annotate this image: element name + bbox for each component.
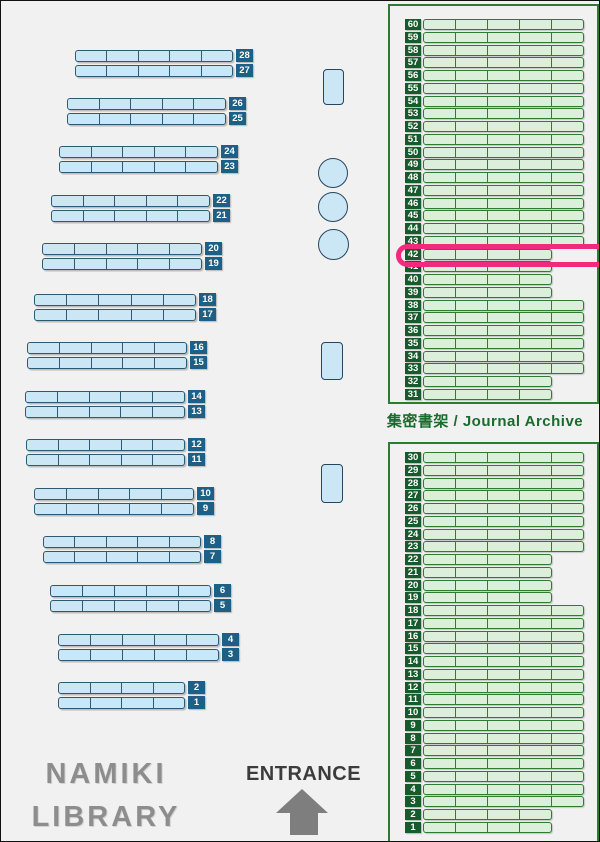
archive-shelf bbox=[423, 147, 584, 158]
shelf-segment bbox=[107, 51, 138, 61]
archive-shelf-number: 31 bbox=[405, 389, 421, 400]
shelf-segment bbox=[424, 58, 456, 67]
shelf-segment bbox=[552, 352, 583, 361]
shelf-segment bbox=[424, 211, 456, 220]
shelf-segment bbox=[520, 148, 552, 157]
pillar bbox=[321, 464, 343, 503]
archive-shelf-number: 52 bbox=[405, 121, 421, 132]
shelf-segment bbox=[488, 644, 520, 653]
shelf-segment bbox=[456, 186, 488, 195]
archive-shelf-pair: 1211 bbox=[405, 682, 597, 706]
shelf-segment bbox=[520, 670, 552, 679]
shelf-segment bbox=[488, 288, 520, 297]
archive-shelf-pair: 109 bbox=[405, 707, 597, 731]
archive-shelf bbox=[423, 287, 552, 298]
shelf-segment bbox=[520, 339, 552, 348]
floor-shelf-row: 9 bbox=[34, 502, 214, 515]
shelf-segment bbox=[424, 84, 456, 93]
shelf-segment bbox=[138, 259, 170, 269]
shelf-segment bbox=[520, 708, 552, 717]
shelf-segment bbox=[115, 196, 147, 206]
floor-shelf-row: 13 bbox=[25, 405, 205, 418]
shelf-segment bbox=[424, 352, 456, 361]
shelf-segment bbox=[488, 581, 520, 590]
shelf-segment bbox=[456, 339, 488, 348]
shelf-segment bbox=[520, 313, 552, 322]
archive-shelf bbox=[423, 57, 584, 68]
shelf-segment bbox=[552, 453, 583, 462]
floor-shelf-number: 5 bbox=[214, 599, 231, 612]
shelf-segment bbox=[424, 237, 456, 246]
shelf-segment bbox=[520, 224, 552, 233]
archive-shelf-pair: 3635 bbox=[405, 325, 597, 349]
shelf-segment bbox=[552, 695, 583, 704]
shelf-segment bbox=[552, 301, 583, 310]
shelf-segment bbox=[147, 196, 179, 206]
shelf-segment bbox=[520, 364, 552, 373]
archive-shelf bbox=[423, 541, 584, 552]
shelf-segment bbox=[552, 797, 583, 806]
archive-shelf-number: 7 bbox=[405, 745, 421, 756]
shelf-segment bbox=[43, 244, 75, 254]
shelf-segment bbox=[520, 237, 552, 246]
shelf-segment bbox=[488, 339, 520, 348]
shelf-segment bbox=[552, 20, 583, 29]
archive-shelf-row: 1 bbox=[405, 822, 597, 833]
shelf-segment bbox=[123, 343, 155, 353]
shelf-segment bbox=[26, 392, 58, 402]
archive-shelf bbox=[423, 376, 552, 387]
shelf-segment bbox=[488, 135, 520, 144]
archive-shelf-number: 50 bbox=[405, 147, 421, 158]
floor-shelf bbox=[34, 309, 196, 321]
shelf-segment bbox=[123, 650, 155, 660]
archive-shelf-row: 29 bbox=[405, 465, 597, 476]
archive-shelf-pair: 3837 bbox=[405, 300, 597, 324]
shelf-segment bbox=[424, 721, 456, 730]
shelf-segment bbox=[153, 440, 184, 450]
shelf-segment bbox=[456, 71, 488, 80]
shelf-segment bbox=[488, 262, 520, 271]
shelf-segment bbox=[100, 114, 132, 124]
floor-shelf-number: 2 bbox=[188, 681, 205, 694]
shelf-segment bbox=[194, 99, 225, 109]
archive-shelf-number: 54 bbox=[405, 96, 421, 107]
archive-shelf-row: 6 bbox=[405, 758, 597, 769]
archive-shelf-row: 5 bbox=[405, 771, 597, 782]
shelf-segment bbox=[60, 162, 92, 172]
archive-shelf-number: 27 bbox=[405, 490, 421, 501]
archive-shelf-row: 48 bbox=[405, 172, 597, 183]
shelf-segment bbox=[132, 295, 164, 305]
shelf-segment bbox=[456, 135, 488, 144]
shelf-segment bbox=[107, 552, 138, 562]
archive-shelf-row: 56 bbox=[405, 70, 597, 81]
shelf-segment bbox=[154, 698, 185, 708]
archive-shelf-number: 26 bbox=[405, 503, 421, 514]
floor-shelf-pair: 2625 bbox=[67, 97, 246, 125]
shelf-segment bbox=[424, 734, 456, 743]
archive-shelf-pair: 21 bbox=[405, 809, 597, 833]
archive-shelf-number: 17 bbox=[405, 618, 421, 629]
shelf-segment bbox=[99, 504, 131, 514]
shelf-segment bbox=[456, 313, 488, 322]
archive-shelf bbox=[423, 631, 584, 642]
archive-shelf-pair: 3231 bbox=[405, 376, 597, 400]
shelf-segment bbox=[155, 358, 186, 368]
archive-shelf bbox=[423, 643, 584, 654]
archive-shelf-pair: 1615 bbox=[405, 631, 597, 655]
shelf-segment bbox=[424, 275, 456, 284]
archive-shelf-row: 26 bbox=[405, 503, 597, 514]
library-name: NAMIKI LIBRARY bbox=[11, 753, 201, 839]
floor-shelf bbox=[43, 536, 201, 548]
archive-shelf bbox=[423, 618, 584, 629]
shelf-segment bbox=[488, 148, 520, 157]
shelf-segment bbox=[424, 453, 456, 462]
archive-shelf-row: 3 bbox=[405, 796, 597, 807]
shelf-segment bbox=[552, 313, 583, 322]
shelf-segment bbox=[138, 244, 170, 254]
shelf-segment bbox=[552, 173, 583, 182]
shelf-segment bbox=[488, 670, 520, 679]
shelf-segment bbox=[424, 746, 456, 755]
archive-shelf bbox=[423, 605, 584, 616]
shelf-segment bbox=[456, 823, 488, 832]
floor-shelf-number: 14 bbox=[188, 390, 205, 403]
shelf-segment bbox=[456, 122, 488, 131]
floor-shelf bbox=[43, 551, 201, 563]
entrance-label: ENTRANCE bbox=[236, 763, 371, 786]
shelf-segment bbox=[488, 364, 520, 373]
shelf-segment bbox=[138, 537, 169, 547]
shelf-segment bbox=[456, 644, 488, 653]
shelf-segment bbox=[121, 392, 153, 402]
archive-shelf bbox=[423, 682, 584, 693]
shelf-segment bbox=[456, 491, 488, 500]
floor-shelf-row: 23 bbox=[59, 160, 238, 173]
shelf-segment bbox=[35, 295, 67, 305]
floor-shelf-number: 15 bbox=[190, 356, 207, 369]
shelf-segment bbox=[456, 20, 488, 29]
floor-shelf bbox=[58, 682, 185, 694]
shelf-segment bbox=[75, 244, 107, 254]
shelf-segment bbox=[456, 772, 488, 781]
shelf-segment bbox=[488, 84, 520, 93]
shelf-segment bbox=[424, 593, 456, 602]
floor-shelf-row: 2 bbox=[58, 681, 205, 694]
shelf-segment bbox=[139, 66, 170, 76]
floor-shelf-pair: 65 bbox=[50, 584, 231, 612]
archive-shelf-row: 31 bbox=[405, 389, 597, 400]
shelf-segment bbox=[179, 601, 210, 611]
shelf-segment bbox=[520, 785, 552, 794]
shelf-segment bbox=[552, 148, 583, 157]
shelf-segment bbox=[456, 568, 488, 577]
shelf-segment bbox=[424, 772, 456, 781]
shelf-segment bbox=[488, 313, 520, 322]
shelf-segment bbox=[552, 734, 583, 743]
shelf-segment bbox=[424, 33, 456, 42]
shelf-segment bbox=[552, 237, 583, 246]
shelf-segment bbox=[488, 466, 520, 475]
archive-shelf-pair: 3029 bbox=[405, 452, 597, 476]
archive-shelf-row: 16 bbox=[405, 631, 597, 642]
archive-shelf-number: 30 bbox=[405, 452, 421, 463]
shelf-segment bbox=[488, 109, 520, 118]
archive-shelf-row: 38 bbox=[405, 300, 597, 311]
shelf-segment bbox=[520, 58, 552, 67]
archive-shelf bbox=[423, 300, 584, 311]
archive-shelf-row: 50 bbox=[405, 147, 597, 158]
shelf-segment bbox=[83, 601, 115, 611]
floor-shelf-number: 28 bbox=[236, 49, 253, 62]
shelf-segment bbox=[424, 530, 456, 539]
shelf-segment bbox=[84, 211, 116, 221]
shelf-segment bbox=[456, 542, 488, 551]
archive-shelf-pair: 4847 bbox=[405, 172, 597, 196]
shelf-segment bbox=[552, 326, 583, 335]
archive-shelf-pair: 2423 bbox=[405, 529, 597, 553]
shelf-segment bbox=[520, 542, 552, 551]
archive-shelf-number: 57 bbox=[405, 57, 421, 68]
shelf-segment bbox=[488, 593, 520, 602]
archive-shelf bbox=[423, 822, 552, 833]
round-column bbox=[318, 158, 348, 188]
library-name-line1: NAMIKI bbox=[11, 753, 201, 796]
shelf-segment bbox=[456, 683, 488, 692]
shelf-segment bbox=[488, 491, 520, 500]
shelf-segment bbox=[520, 453, 552, 462]
archive-shelf bbox=[423, 809, 552, 820]
archive-shelf-row: 45 bbox=[405, 210, 597, 221]
shelf-segment bbox=[67, 295, 99, 305]
shelf-segment bbox=[456, 288, 488, 297]
shelf-segment bbox=[424, 250, 456, 259]
shelf-segment bbox=[488, 721, 520, 730]
floor-shelf-number: 8 bbox=[204, 535, 221, 548]
archive-shelf bbox=[423, 19, 584, 30]
shelf-segment bbox=[488, 785, 520, 794]
archive-shelf-row: 7 bbox=[405, 745, 597, 756]
archive-shelf-number: 3 bbox=[405, 796, 421, 807]
floor-shelf-number: 20 bbox=[205, 242, 222, 255]
shelf-segment bbox=[424, 479, 456, 488]
shelf-segment bbox=[424, 301, 456, 310]
pillar bbox=[323, 69, 344, 105]
floor-shelf bbox=[25, 406, 185, 418]
archive-shelf-number: 16 bbox=[405, 631, 421, 642]
floor-shelf-number: 25 bbox=[229, 112, 246, 125]
shelf-segment bbox=[424, 542, 456, 551]
floor-shelf bbox=[27, 357, 187, 369]
floor-shelf-number: 21 bbox=[213, 209, 230, 222]
shelf-segment bbox=[488, 517, 520, 526]
shelf-segment bbox=[163, 99, 195, 109]
floor-shelf-row: 15 bbox=[27, 356, 207, 369]
archive-shelf-pair: 5049 bbox=[405, 147, 597, 171]
shelf-segment bbox=[552, 199, 583, 208]
archive-shelf bbox=[423, 503, 584, 514]
archive-shelf-number: 15 bbox=[405, 643, 421, 654]
shelf-segment bbox=[456, 632, 488, 641]
shelf-segment bbox=[456, 619, 488, 628]
shelf-segment bbox=[520, 797, 552, 806]
shelf-segment bbox=[123, 147, 155, 157]
shelf-segment bbox=[552, 542, 583, 551]
shelf-segment bbox=[424, 390, 456, 399]
shelf-segment bbox=[552, 109, 583, 118]
shelf-segment bbox=[552, 97, 583, 106]
shelf-segment bbox=[552, 759, 583, 768]
shelf-segment bbox=[456, 734, 488, 743]
shelf-segment bbox=[424, 759, 456, 768]
floor-shelf bbox=[42, 258, 202, 270]
archive-shelf bbox=[423, 338, 584, 349]
shelf-segment bbox=[155, 635, 187, 645]
floor-shelf-pair: 43 bbox=[58, 633, 239, 661]
archive-shelf bbox=[423, 198, 584, 209]
shelf-segment bbox=[424, 708, 456, 717]
shelf-segment bbox=[153, 407, 184, 417]
floor-shelf-number: 17 bbox=[199, 308, 216, 321]
shelf-segment bbox=[424, 186, 456, 195]
archive-shelf-row: 14 bbox=[405, 656, 597, 667]
shelf-segment bbox=[115, 601, 147, 611]
archive-shelf-number: 58 bbox=[405, 45, 421, 56]
archive-shelf-row: 25 bbox=[405, 516, 597, 527]
shelf-segment bbox=[92, 358, 124, 368]
shelf-segment bbox=[92, 162, 124, 172]
floor-shelf-row: 21 bbox=[51, 209, 230, 222]
archive-shelf-number: 25 bbox=[405, 516, 421, 527]
floor-shelf-number: 7 bbox=[204, 550, 221, 563]
shelf-segment bbox=[552, 657, 583, 666]
archive-shelf-row: 51 bbox=[405, 134, 597, 145]
shelf-segment bbox=[552, 339, 583, 348]
entrance-arrow-icon bbox=[276, 789, 328, 813]
archive-shelf-number: 40 bbox=[405, 274, 421, 285]
shelf-segment bbox=[122, 440, 154, 450]
shelf-segment bbox=[456, 390, 488, 399]
archive-shelf-number: 48 bbox=[405, 172, 421, 183]
shelf-segment bbox=[488, 555, 520, 564]
shelf-segment bbox=[92, 343, 124, 353]
floor-shelf-pair: 109 bbox=[34, 487, 214, 515]
shelf-segment bbox=[76, 51, 107, 61]
archive-shelf-row: 55 bbox=[405, 83, 597, 94]
floor-shelf bbox=[58, 697, 185, 709]
shelf-segment bbox=[552, 135, 583, 144]
archive-shelf bbox=[423, 134, 584, 145]
shelf-segment bbox=[456, 479, 488, 488]
shelf-segment bbox=[552, 619, 583, 628]
archive-shelf-pair: 6059 bbox=[405, 19, 597, 43]
floor-shelf bbox=[26, 439, 185, 451]
shelf-segment bbox=[115, 211, 147, 221]
floor-shelf bbox=[59, 146, 218, 158]
archive-shelf bbox=[423, 325, 584, 336]
shelf-segment bbox=[186, 162, 217, 172]
shelf-segment bbox=[424, 288, 456, 297]
floor-shelf-pair: 2019 bbox=[42, 242, 222, 270]
floor-shelf-row: 25 bbox=[67, 112, 246, 125]
shelf-segment bbox=[488, 453, 520, 462]
shelf-segment bbox=[456, 517, 488, 526]
floor-shelf bbox=[50, 585, 211, 597]
shelf-segment bbox=[520, 33, 552, 42]
shelf-segment bbox=[520, 199, 552, 208]
shelf-segment bbox=[424, 97, 456, 106]
shelf-segment bbox=[424, 20, 456, 29]
archive-shelf-row: 33 bbox=[405, 363, 597, 374]
shelf-segment bbox=[488, 71, 520, 80]
shelf-segment bbox=[99, 295, 131, 305]
archive-shelf bbox=[423, 223, 584, 234]
shelf-segment bbox=[520, 160, 552, 169]
floor-shelf-row: 24 bbox=[59, 145, 238, 158]
shelf-segment bbox=[552, 632, 583, 641]
archive-shelf bbox=[423, 185, 584, 196]
archive-shelf bbox=[423, 465, 584, 476]
archive-shelf-pair: 1413 bbox=[405, 656, 597, 680]
floor-shelf-pair: 2221 bbox=[51, 194, 230, 222]
library-floor-map: 2827262524232221201918171615141312111098… bbox=[0, 0, 600, 842]
archive-shelf-row: 54 bbox=[405, 96, 597, 107]
archive-shelf-row: 17 bbox=[405, 618, 597, 629]
shelf-segment bbox=[147, 586, 179, 596]
shelf-segment bbox=[456, 237, 488, 246]
shelf-segment bbox=[90, 455, 122, 465]
archive-shelf-number: 34 bbox=[405, 351, 421, 362]
shelf-segment bbox=[552, 772, 583, 781]
shelf-segment bbox=[456, 797, 488, 806]
archive-shelf-row: 4 bbox=[405, 784, 597, 795]
shelf-segment bbox=[488, 224, 520, 233]
shelf-segment bbox=[99, 489, 131, 499]
floor-shelf-number: 9 bbox=[197, 502, 214, 515]
shelf-segment bbox=[520, 632, 552, 641]
shelf-segment bbox=[75, 537, 106, 547]
shelf-segment bbox=[424, 313, 456, 322]
shelf-segment bbox=[488, 377, 520, 386]
archive-shelf-number: 49 bbox=[405, 159, 421, 170]
shelf-segment bbox=[520, 135, 552, 144]
shelf-segment bbox=[488, 199, 520, 208]
shelf-segment bbox=[520, 97, 552, 106]
shelf-segment bbox=[155, 650, 187, 660]
shelf-segment bbox=[488, 326, 520, 335]
archive-shelf-number: 21 bbox=[405, 567, 421, 578]
shelf-segment bbox=[75, 259, 107, 269]
shelf-segment bbox=[552, 530, 583, 539]
shelf-segment bbox=[456, 453, 488, 462]
shelf-segment bbox=[552, 644, 583, 653]
shelf-segment bbox=[424, 823, 456, 832]
shelf-segment bbox=[488, 542, 520, 551]
shelf-segment bbox=[75, 552, 106, 562]
shelf-segment bbox=[520, 84, 552, 93]
floor-shelf-pair: 21 bbox=[58, 681, 205, 709]
floor-shelf bbox=[51, 195, 210, 207]
archive-shelf bbox=[423, 70, 584, 81]
shelf-segment bbox=[520, 479, 552, 488]
shelf-segment bbox=[520, 593, 551, 602]
floor-shelf-number: 23 bbox=[221, 160, 238, 173]
floor-shelf bbox=[58, 634, 219, 646]
floor-shelf bbox=[34, 488, 194, 500]
archive-shelf-number: 8 bbox=[405, 733, 421, 744]
